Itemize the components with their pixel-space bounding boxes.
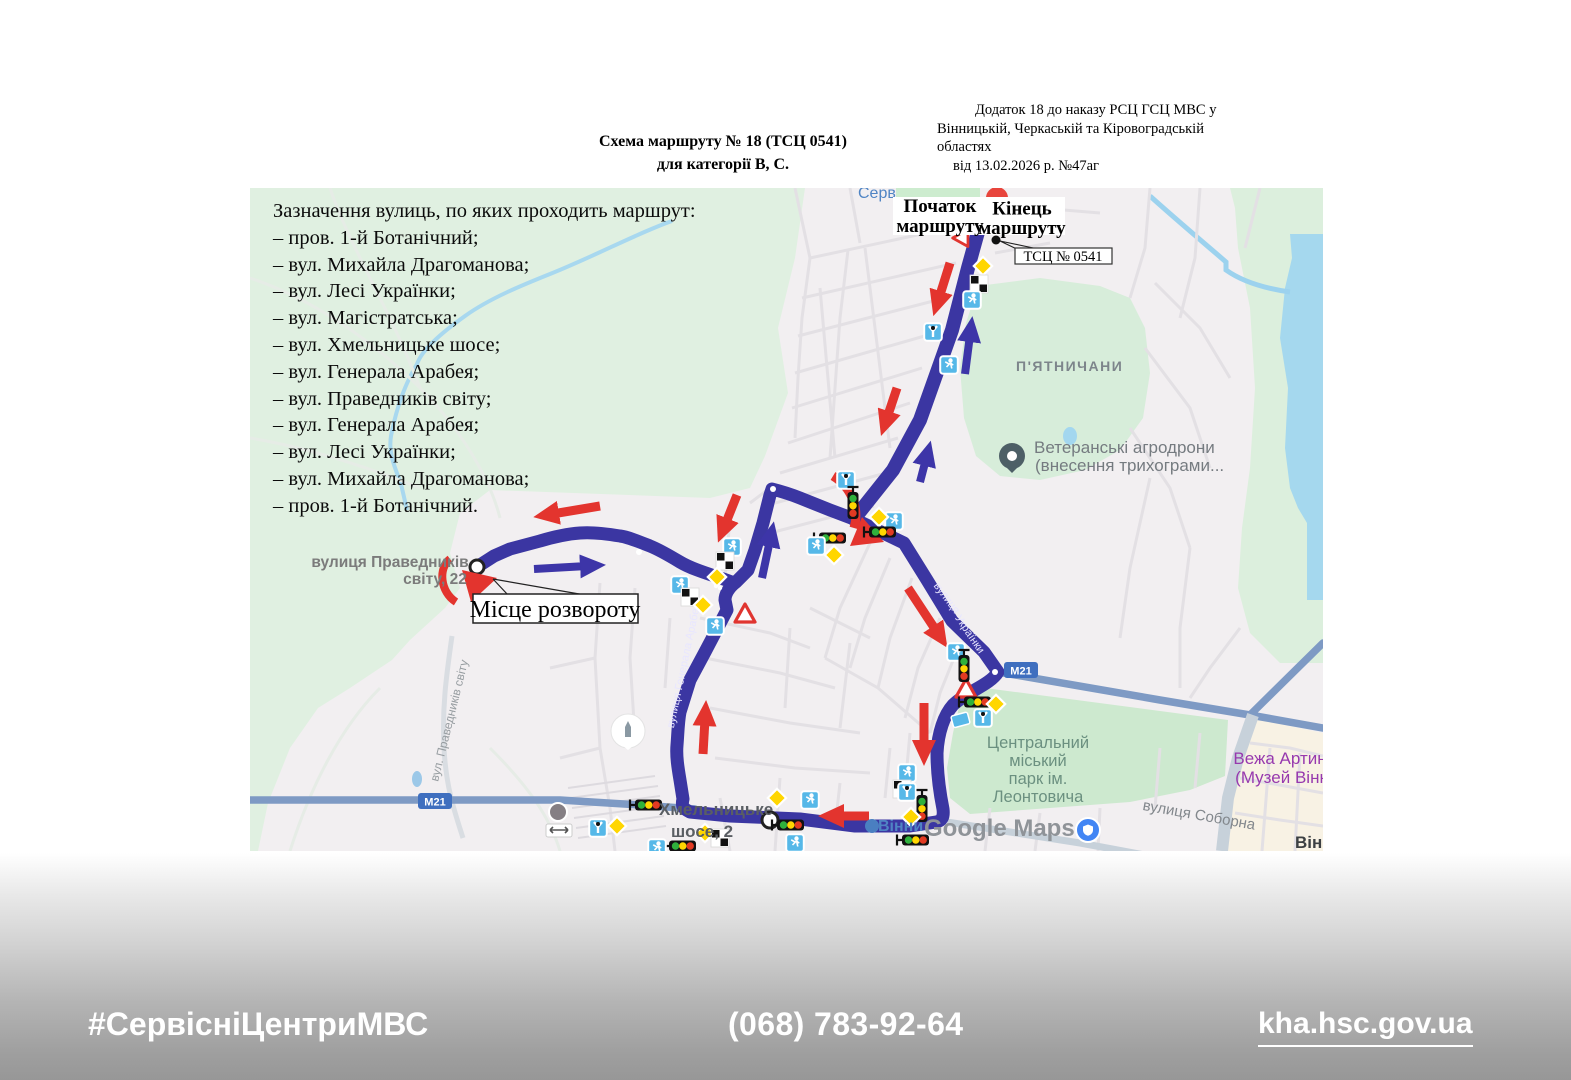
svg-text:парк ім.: парк ім. (1009, 770, 1068, 788)
svg-text:Ветеранські агродрони: Ветеранські агродрони (1034, 438, 1215, 457)
svg-text:M21: M21 (424, 797, 445, 809)
svg-text:Центральний: Центральний (987, 734, 1089, 752)
svg-text:Вінн: Вінн (1295, 833, 1323, 851)
svg-text:міський: міський (1009, 752, 1067, 770)
svg-text:(внесення трихограми...: (внесення трихограми... (1035, 456, 1224, 475)
svg-text:Кінець: Кінець (992, 199, 1051, 220)
svg-text:маршруту: маршруту (978, 218, 1066, 239)
svg-text:вулиця Праведників: вулиця Праведників (311, 554, 468, 571)
svg-text:M21: M21 (1010, 666, 1031, 678)
svg-text:Google Maps: Google Maps (924, 815, 1075, 842)
svg-text:світу, 22: світу, 22 (403, 571, 467, 588)
svg-text:маршруту: маршруту (896, 216, 984, 237)
svg-text:Вінни: Вінни (878, 818, 923, 835)
svg-text:(Музей Вінн: (Музей Вінн (1235, 768, 1323, 787)
svg-text:Місце розвороту: Місце розвороту (470, 597, 641, 623)
svg-text:Початок: Початок (903, 196, 976, 217)
svg-text:Леонтовича: Леонтовича (993, 788, 1084, 806)
svg-text:П'ЯТНИЧАНИ: П'ЯТНИЧАНИ (1016, 358, 1123, 374)
svg-text:ТСЦ № 0541: ТСЦ № 0541 (1023, 249, 1102, 265)
svg-text:Вежа Артин: Вежа Артин (1233, 749, 1323, 768)
svg-text:шосе, 2: шосе, 2 (671, 822, 733, 841)
svg-text:Хмельницьке: Хмельницьке (659, 800, 773, 819)
